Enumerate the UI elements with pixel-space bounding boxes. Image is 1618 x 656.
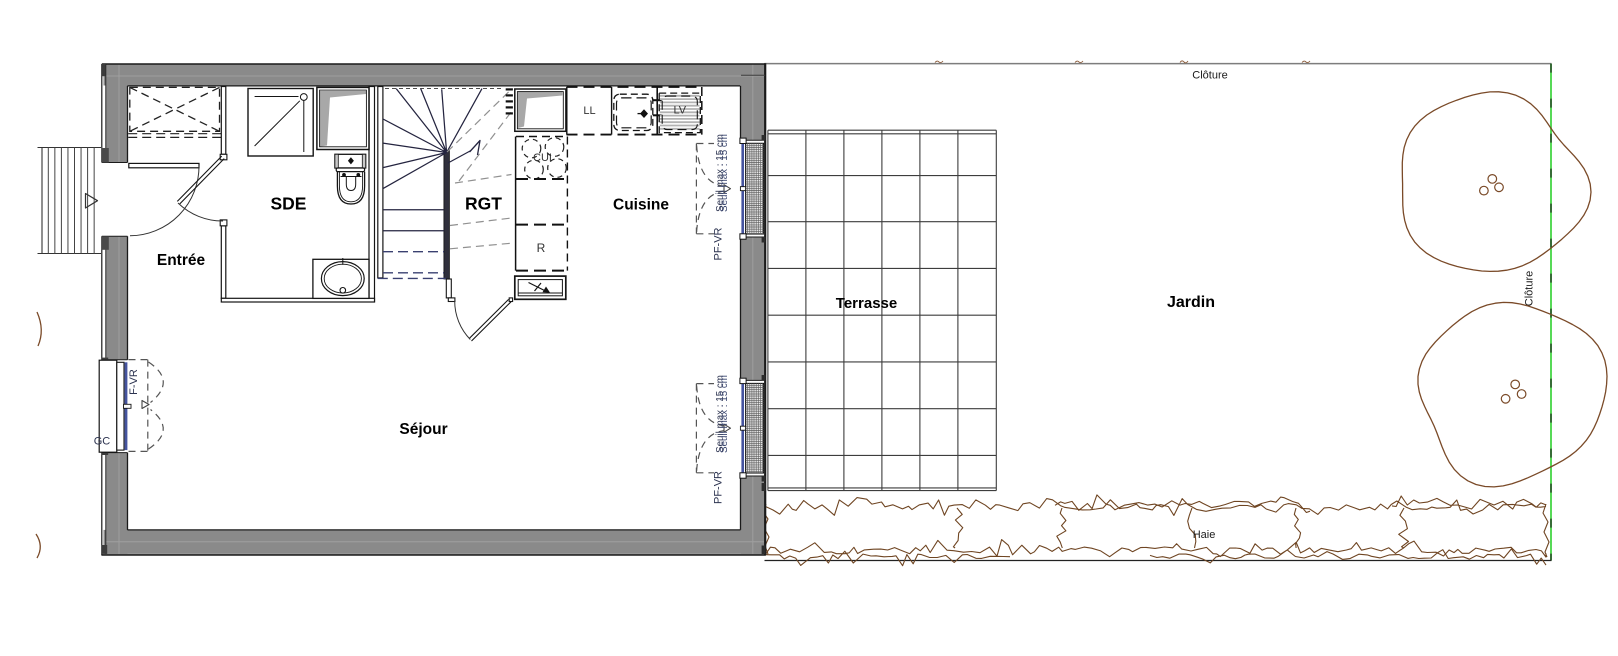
svg-text:Haie: Haie [1193, 529, 1216, 541]
svg-text:Séjour: Séjour [399, 421, 447, 438]
svg-text:PF-VR: PF-VR [713, 471, 725, 504]
svg-text:R: R [537, 241, 546, 255]
svg-text:Clôture: Clôture [1524, 271, 1536, 306]
svg-text:CUI: CUI [533, 152, 552, 164]
svg-text:Clôture: Clôture [1192, 70, 1227, 82]
svg-text:LV: LV [673, 105, 686, 117]
svg-text:PF-VR: PF-VR [713, 227, 725, 260]
svg-text:Terrasse: Terrasse [836, 295, 897, 312]
svg-text:Jardin: Jardin [1167, 294, 1215, 311]
svg-text:LL: LL [583, 105, 595, 117]
svg-text:GC: GC [94, 436, 111, 448]
svg-text:F-VR: F-VR [128, 369, 140, 395]
svg-text:Cuisine: Cuisine [613, 197, 669, 214]
svg-text:SDE: SDE [271, 194, 307, 214]
svg-text:RGT: RGT [465, 194, 502, 214]
svg-text:Seuil max : 15 cm: Seuil max : 15 cm [719, 375, 730, 453]
svg-text:Entrée: Entrée [157, 252, 206, 269]
svg-text:Seuil max : 15 cm: Seuil max : 15 cm [719, 134, 730, 212]
